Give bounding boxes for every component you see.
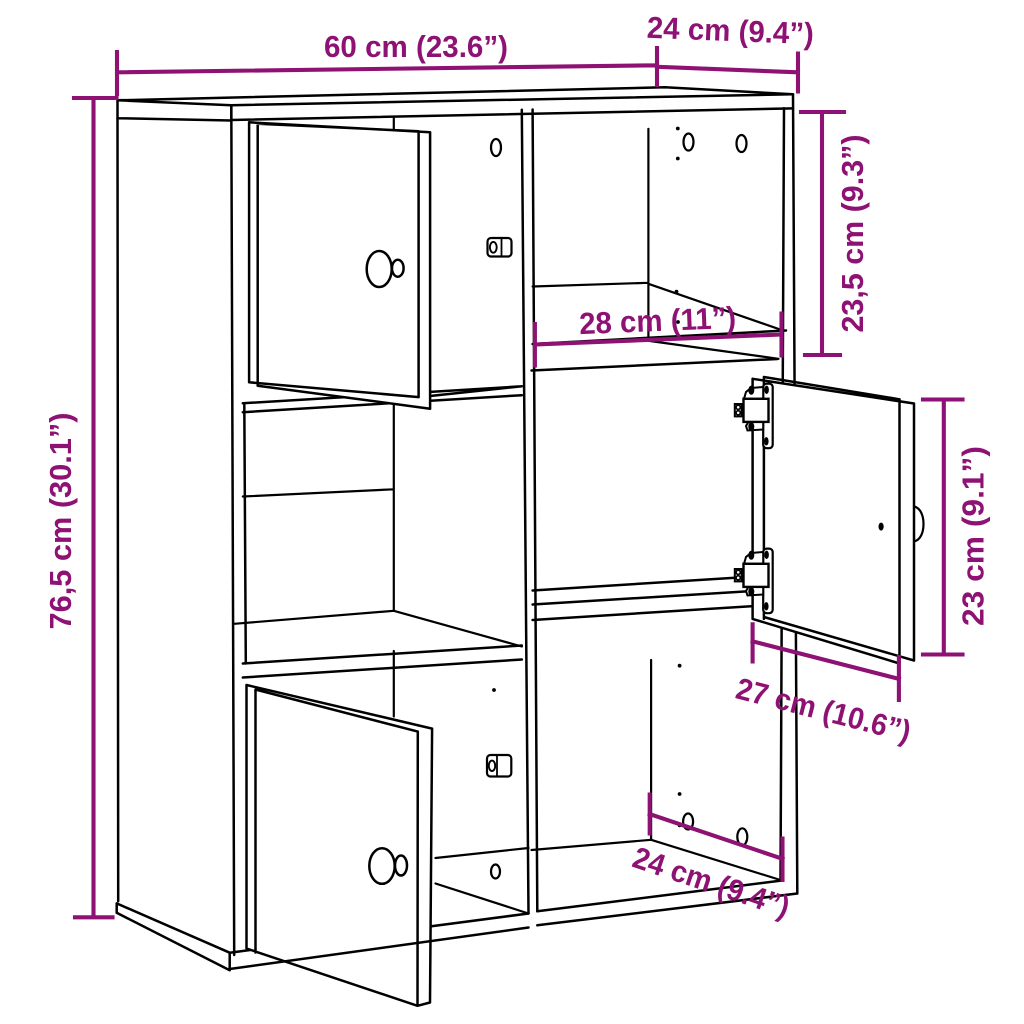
svg-text:28 cm (11”): 28 cm (11”) [578,301,736,341]
svg-text:60 cm (23.6”): 60 cm (23.6”) [324,30,508,64]
svg-text:24 cm (9.4”): 24 cm (9.4”) [646,11,814,51]
svg-text:23 cm (9.1”): 23 cm (9.1”) [957,446,991,626]
svg-text:76,5 cm (30.1”): 76,5 cm (30.1”) [44,413,78,630]
svg-text:23,5 cm (9.3”): 23,5 cm (9.3”) [836,135,870,333]
